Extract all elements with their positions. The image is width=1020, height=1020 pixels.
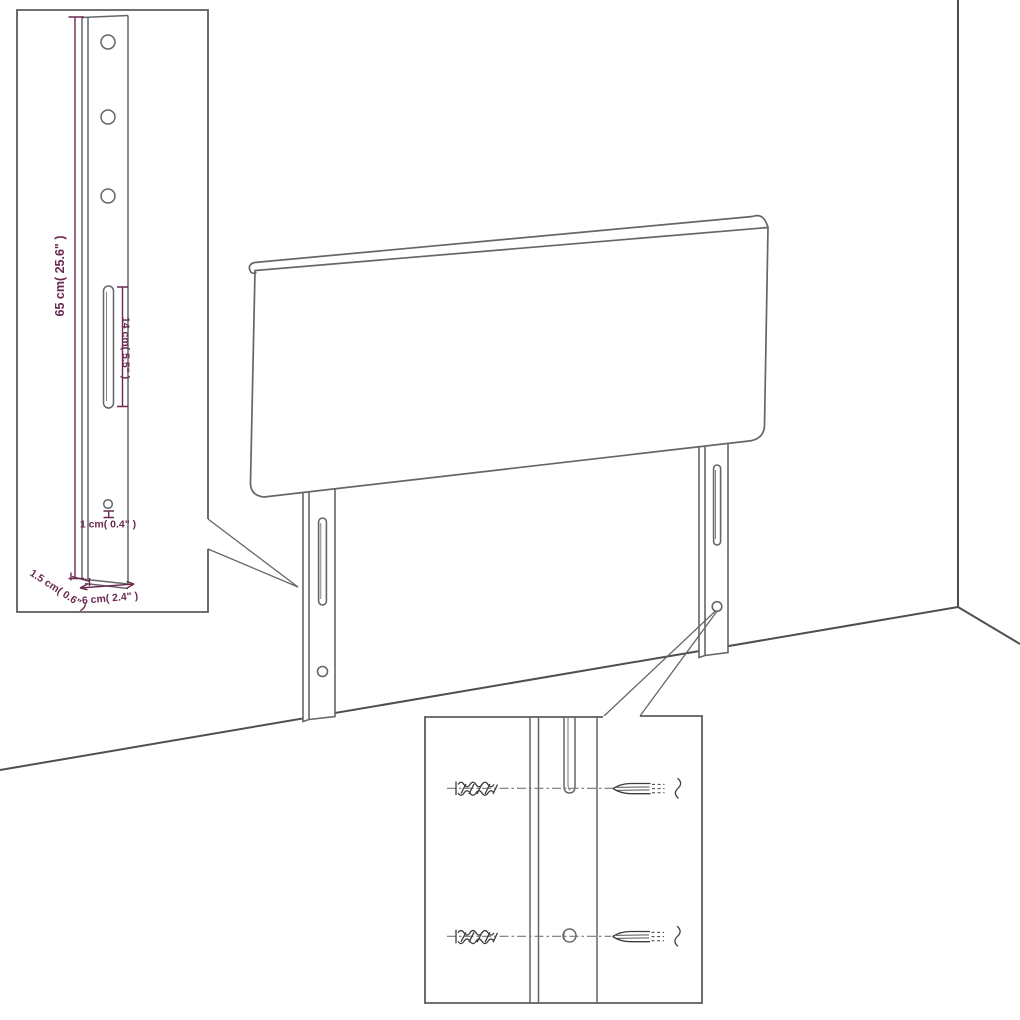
dim-1cm-label: 1 cm( 0.4" ) <box>80 519 136 531</box>
left-leg-hole <box>318 667 328 677</box>
dim-65cm-label: 65 cm( 25.6" ) <box>53 236 67 317</box>
floor-line-right <box>958 607 1020 644</box>
headboard-rim-right-curl <box>753 216 769 228</box>
post-detail-inset: 65 cm( 25.6" ) 14 cm( 5.5" ) 1 cm( 0.4" … <box>17 10 208 613</box>
callout-lines <box>208 519 717 717</box>
dim-14cm-label: 14 cm( 5.5" ) <box>120 317 132 379</box>
left-leg-slot <box>319 518 327 605</box>
screw-detail-inset <box>425 716 702 1003</box>
headboard-panel <box>249 216 768 497</box>
headboard-left-leg <box>303 475 335 722</box>
callout-screw-inset-right <box>640 612 717 717</box>
right-leg-slot <box>714 465 721 545</box>
headboard-dimension-diagram: 65 cm( 25.6" ) 14 cm( 5.5" ) 1 cm( 0.4" … <box>0 0 1020 1020</box>
callout-post-inset-lower <box>208 549 298 587</box>
callout-post-inset-upper <box>208 519 298 587</box>
right-leg-hole <box>712 602 722 612</box>
